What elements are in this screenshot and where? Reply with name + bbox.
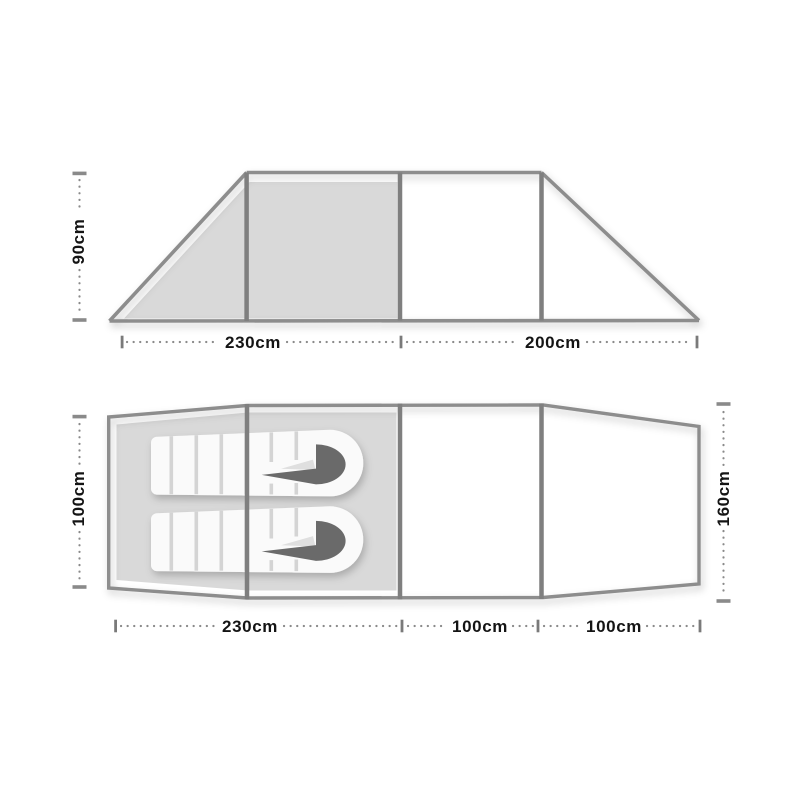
- svg-text:230cm: 230cm: [222, 617, 278, 636]
- svg-text:200cm: 200cm: [525, 333, 581, 352]
- svg-text:100cm: 100cm: [69, 471, 88, 527]
- svg-text:90cm: 90cm: [69, 219, 88, 265]
- svg-text:160cm: 160cm: [714, 471, 733, 527]
- svg-text:100cm: 100cm: [586, 617, 642, 636]
- svg-text:100cm: 100cm: [452, 617, 508, 636]
- svg-text:230cm: 230cm: [225, 333, 281, 352]
